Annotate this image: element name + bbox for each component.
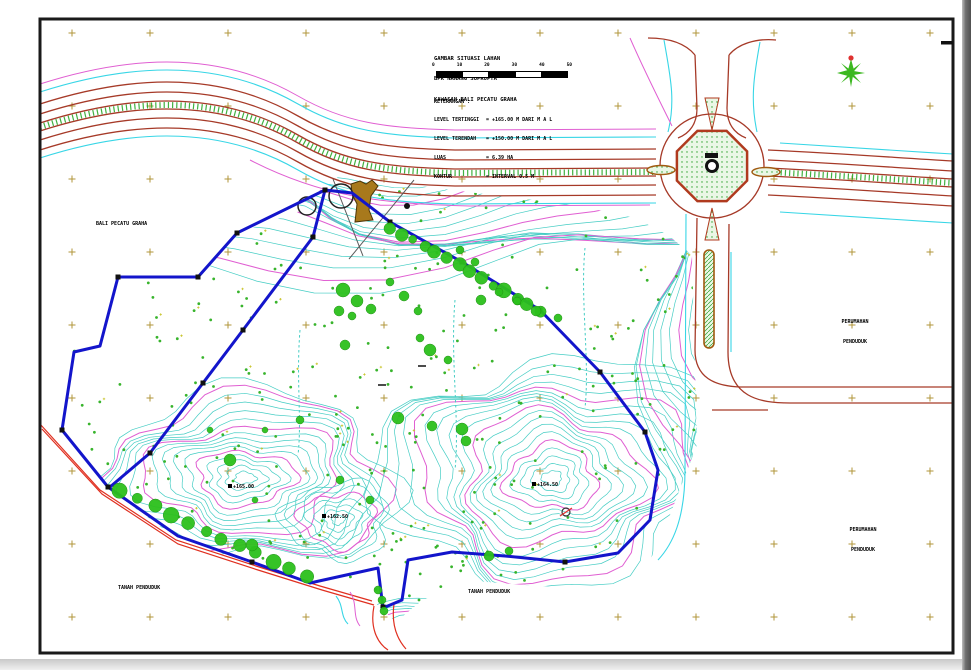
roundabout (647, 114, 780, 218)
window-bottom-edge (0, 659, 962, 670)
label-bali-pecatu-graha: BALI PECATU GRAHA (96, 221, 147, 227)
main-road-west (40, 62, 656, 206)
survey-marker-dot (404, 203, 410, 209)
drawing-title-line1: GAMBAR SITUASI LAHAN (434, 56, 517, 63)
median-nose-west (647, 166, 675, 175)
label-tanah-penduduk-east: TANAH PENDUDUK (468, 589, 510, 595)
legend-row: KONTUR= INTERVAL 0.5 M (434, 174, 552, 180)
median-island-south (704, 250, 714, 348)
scale-bar (436, 71, 568, 78)
label-housing-bottom: PERUMAHAN PENDUDUK (828, 514, 898, 566)
median-nose-east (752, 168, 780, 177)
splitter-island-south (705, 208, 719, 240)
label-tanah-penduduk-west: TANAH PENDUDUK (118, 585, 160, 591)
frame-fold-mark (941, 41, 953, 45)
scale-bar-labels: 0 10 20 30 40 50 (432, 63, 572, 68)
drawing-viewport: GAMBAR SITUASI LAHAN BPK NANANG SUPROPTA… (0, 0, 971, 670)
main-road-east (768, 143, 953, 223)
legend-row: LUAS= 6.39 HA (434, 155, 552, 161)
monument-symbol-icon (705, 153, 718, 172)
roundabout-south-leg (658, 208, 953, 560)
legend-row: LEVEL TERTINGGI= +165.00 M DARI M A L (434, 117, 552, 123)
drainage-lines (298, 248, 586, 470)
roundabout-north-leg (630, 38, 776, 138)
spot-elevation: +162.50 (322, 514, 348, 521)
label-housing-top: PERUMAHAN PENDUDUK (820, 306, 890, 358)
window-right-edge (962, 0, 971, 670)
spot-elevation: +164.50 (532, 482, 558, 489)
legend-row: LEVEL TERENDAH= +150.00 M DARI M A L (434, 136, 552, 142)
legend: KETERANGAN : LEVEL TERTINGGI= +165.00 M … (434, 86, 552, 192)
legend-heading: KETERANGAN : (434, 99, 552, 105)
spot-elevation: +165.00 (228, 484, 254, 491)
north-arrow-star-icon (837, 55, 865, 87)
